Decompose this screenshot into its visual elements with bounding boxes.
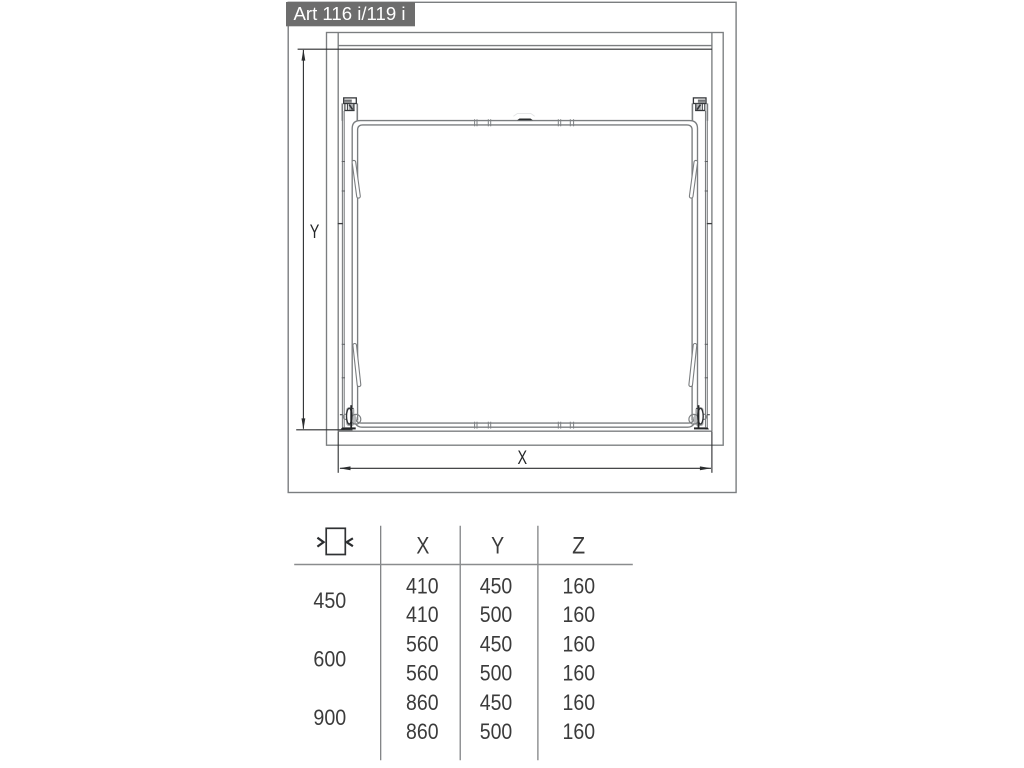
svg-text:560: 560 — [406, 661, 439, 686]
svg-text:160: 160 — [563, 661, 596, 686]
svg-text:X: X — [416, 533, 429, 560]
svg-text:500: 500 — [480, 602, 513, 627]
svg-text:600: 600 — [313, 647, 346, 672]
svg-text:410: 410 — [406, 574, 439, 599]
svg-text:X: X — [518, 448, 528, 469]
svg-text:900: 900 — [313, 705, 346, 730]
svg-text:410: 410 — [406, 602, 439, 627]
svg-text:560: 560 — [406, 632, 439, 657]
svg-text:860: 860 — [406, 690, 439, 715]
svg-text:Z: Z — [572, 533, 585, 560]
svg-text:450: 450 — [480, 574, 513, 599]
svg-text:160: 160 — [563, 632, 596, 657]
svg-text:500: 500 — [480, 719, 513, 744]
svg-text:160: 160 — [563, 574, 596, 599]
svg-text:Art 116 i/119 i: Art 116 i/119 i — [294, 3, 406, 24]
svg-text:Y: Y — [491, 533, 504, 560]
svg-text:500: 500 — [480, 661, 513, 686]
svg-text:450: 450 — [313, 588, 346, 613]
svg-text:160: 160 — [563, 602, 596, 627]
svg-text:160: 160 — [563, 690, 596, 715]
svg-text:450: 450 — [480, 690, 513, 715]
svg-text:860: 860 — [406, 719, 439, 744]
svg-text:450: 450 — [480, 632, 513, 657]
svg-text:Y: Y — [310, 222, 320, 243]
svg-text:160: 160 — [563, 719, 596, 744]
